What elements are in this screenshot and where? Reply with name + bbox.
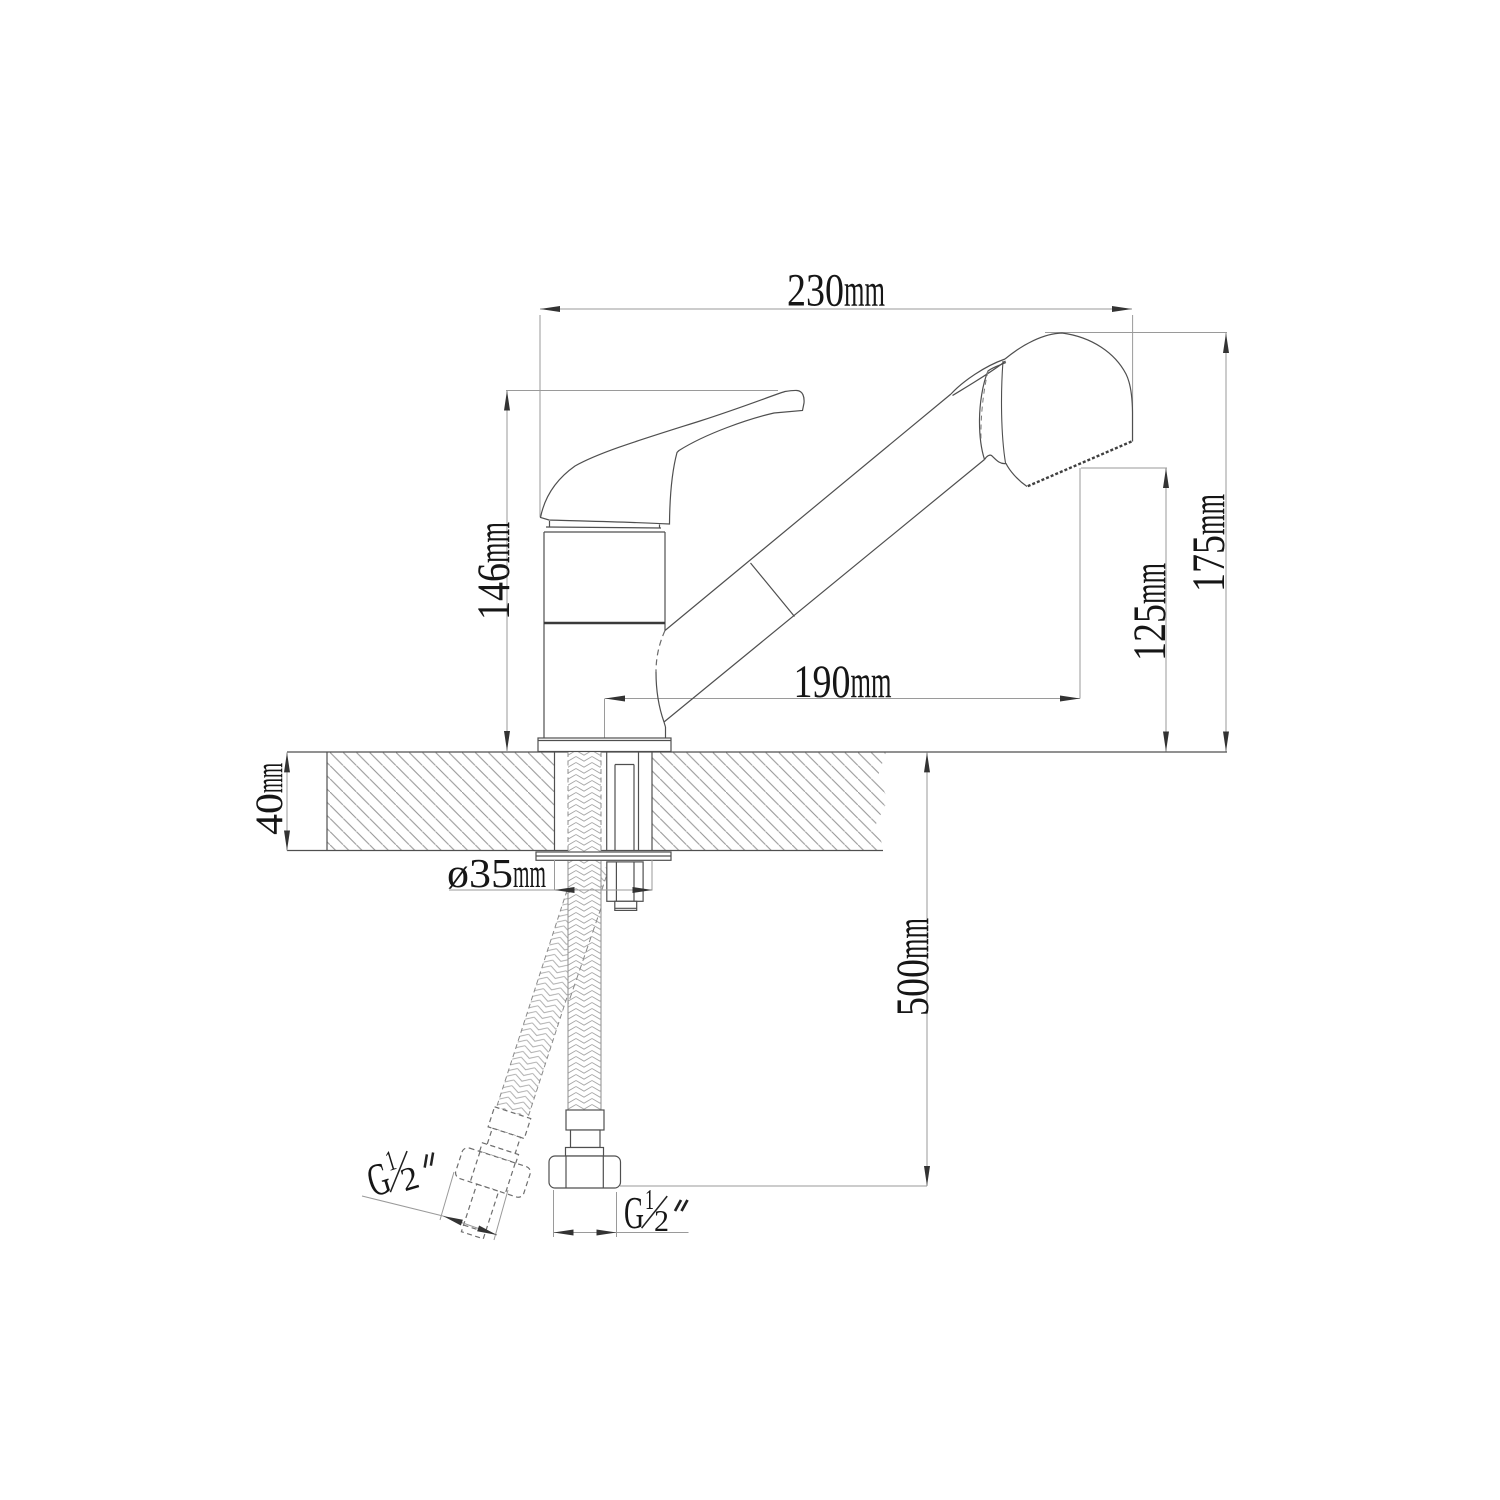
svg-text:2: 2 <box>654 1203 669 1238</box>
svg-text:190: 190 <box>794 656 851 708</box>
svg-text:G: G <box>624 1187 644 1238</box>
svg-text:146mm: 146mm <box>468 522 520 620</box>
svg-text:125mm: 125mm <box>1124 563 1176 661</box>
svg-text:40mm: 40mm <box>248 763 291 835</box>
svg-text:1: 1 <box>645 1185 654 1216</box>
svg-text:230: 230 <box>787 265 844 317</box>
svg-text:mm: mm <box>851 656 892 708</box>
svg-text:mm: mm <box>513 850 546 896</box>
svg-text:175mm: 175mm <box>1183 494 1235 592</box>
svg-text:ø35: ø35 <box>447 850 513 896</box>
svg-text:mm: mm <box>844 265 885 317</box>
svg-text:500mm: 500mm <box>887 918 939 1016</box>
